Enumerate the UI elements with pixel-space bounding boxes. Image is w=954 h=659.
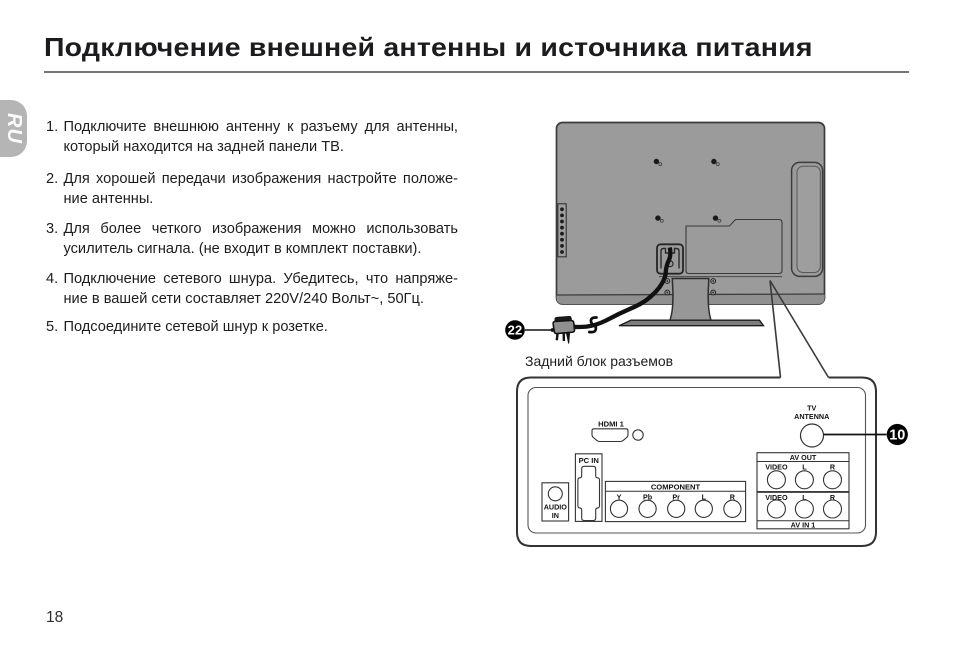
svg-text:PC IN: PC IN bbox=[579, 456, 599, 465]
svg-text:COMPONENT: COMPONENT bbox=[651, 482, 701, 491]
svg-text:ANTENNA: ANTENNA bbox=[794, 412, 829, 421]
svg-text:VIDEO: VIDEO bbox=[765, 463, 788, 472]
svg-text:AV OUT: AV OUT bbox=[790, 453, 817, 462]
svg-text:10: 10 bbox=[889, 428, 905, 444]
svg-text:22: 22 bbox=[508, 323, 523, 338]
svg-text:L: L bbox=[802, 463, 807, 472]
svg-text:AV IN 1: AV IN 1 bbox=[791, 520, 816, 529]
svg-text:IN: IN bbox=[552, 511, 559, 520]
svg-text:HDMI 1: HDMI 1 bbox=[598, 420, 625, 429]
svg-text:R: R bbox=[830, 463, 836, 472]
